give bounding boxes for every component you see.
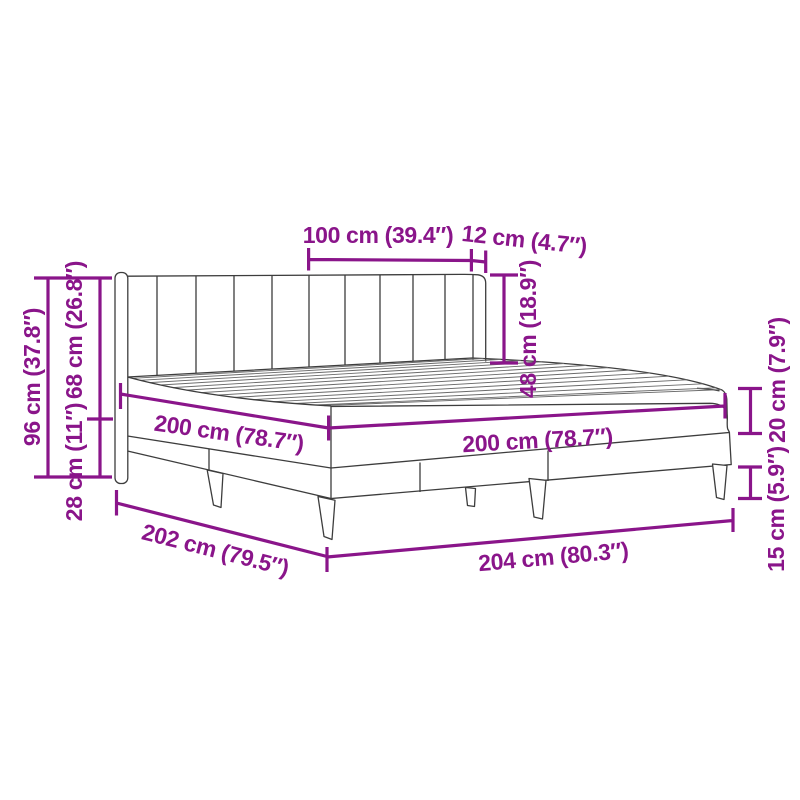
svg-text:20 cm (7.9″): 20 cm (7.9″) bbox=[764, 317, 790, 443]
svg-text:68 cm (26.8″): 68 cm (26.8″) bbox=[61, 261, 87, 399]
svg-text:100 cm (39.4″): 100 cm (39.4″) bbox=[303, 222, 454, 248]
svg-text:28 cm (11″): 28 cm (11″) bbox=[61, 403, 87, 521]
svg-text:96 cm (37.8″): 96 cm (37.8″) bbox=[19, 308, 45, 446]
svg-text:15 cm (5.9″): 15 cm (5.9″) bbox=[763, 446, 789, 572]
svg-text:48 cm (18.9″): 48 cm (18.9″) bbox=[515, 260, 541, 398]
